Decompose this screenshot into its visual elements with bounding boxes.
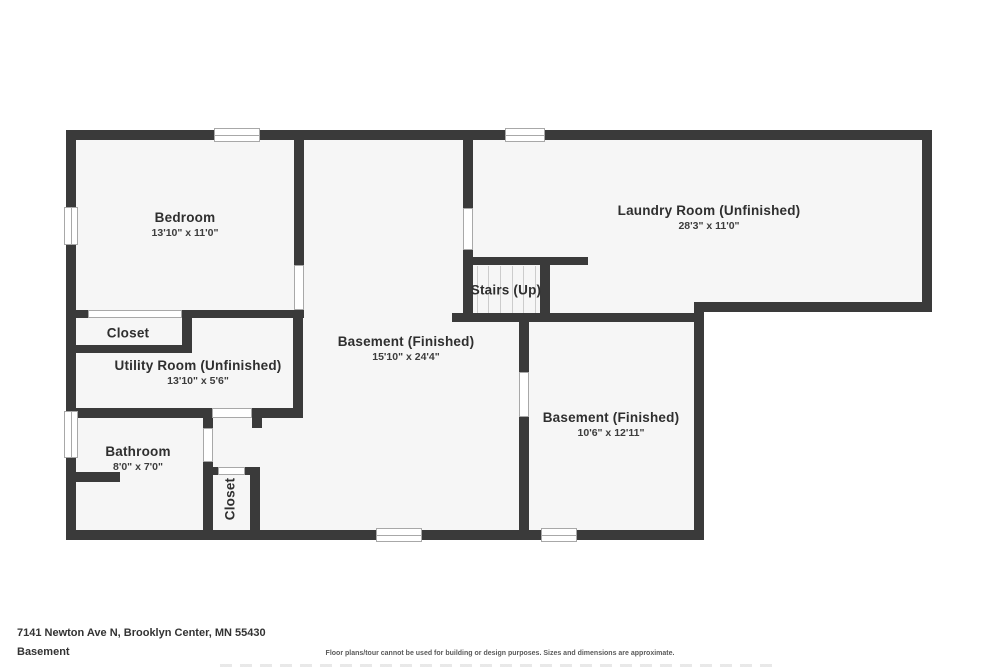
room-dimensions: 10'6" x 12'11" — [543, 427, 680, 440]
floor-plan: Bedroom13'10" x 11'0"ClosetUtility Room … — [0, 0, 1000, 667]
wall-exterior-right-lower — [694, 302, 704, 540]
wall-bedroom-bottom-main — [182, 310, 304, 318]
room-label-bedroom: Bedroom13'10" x 11'0" — [152, 210, 219, 240]
window-glass-line — [506, 135, 544, 136]
room-dimensions: 13'10" x 5'6" — [115, 375, 282, 388]
window-glass-line — [71, 208, 72, 244]
room-label-basement-center: Basement (Finished)15'10" x 24'4" — [338, 334, 475, 364]
room-name: Stairs (Up) — [471, 283, 541, 300]
wall-bathroom-right-stub — [203, 418, 213, 428]
property-address: 7141 Newton Ave N, Brooklyn Center, MN 5… — [17, 627, 266, 639]
wall-closet-lower-right — [250, 467, 260, 540]
disclaimer-text: Floor plans/tour cannot be used for buil… — [326, 650, 675, 657]
room-dimensions: 8'0" x 7'0" — [105, 461, 170, 474]
floor-level-label: Basement — [17, 646, 70, 658]
wall-utility-bottom-right — [252, 408, 303, 418]
window-top-center — [505, 128, 545, 142]
bathroom-door — [203, 428, 213, 462]
basement-right-door — [519, 372, 529, 417]
room-label-bathroom: Bathroom8'0" x 7'0" — [105, 444, 170, 474]
wall-closet-upper-bottom — [66, 345, 192, 353]
window-glass-line — [377, 535, 421, 536]
room-name: Basement (Finished) — [338, 334, 475, 351]
wall-utility-corner-stub — [252, 418, 262, 428]
wall-laundry-bottom — [694, 302, 932, 312]
wall-bedroom-bottom-stub — [66, 310, 88, 318]
window-bottom-center — [376, 528, 422, 542]
wall-exterior-top — [66, 130, 932, 140]
window-bottom-right — [541, 528, 577, 542]
room-name: Utility Room (Unfinished) — [115, 358, 282, 375]
wall-bedroom-right — [294, 140, 304, 265]
wall-basement-right-left-low — [519, 417, 529, 540]
room-label-utility-room: Utility Room (Unfinished)13'10" x 5'6" — [115, 358, 282, 388]
room-name: Closet — [223, 478, 240, 520]
room-name: Basement (Finished) — [543, 410, 680, 427]
room-name: Laundry Room (Unfinished) — [618, 203, 801, 220]
room-name: Bathroom — [105, 444, 170, 461]
wall-exterior-right-upper — [922, 130, 932, 312]
wall-stairs-right — [540, 265, 550, 318]
wall-basement-right-top — [452, 313, 704, 322]
floorplan-page: Bedroom13'10" x 11'0"ClosetUtility Room … — [0, 0, 1000, 667]
room-label-laundry-room: Laundry Room (Unfinished)28'3" x 11'0" — [618, 203, 801, 233]
closet-lower-door — [218, 467, 245, 475]
room-dimensions: 28'3" x 11'0" — [618, 220, 801, 233]
room-label-basement-right: Basement (Finished)10'6" x 12'11" — [543, 410, 680, 440]
laundry-door — [463, 208, 473, 250]
wall-stairs-top — [463, 257, 588, 265]
wall-closet-lower-top-left — [208, 467, 218, 475]
window-top-left — [214, 128, 260, 142]
wall-utility-bottom-left — [66, 408, 212, 418]
wall-utility-right — [293, 318, 303, 418]
window-left-bathroom — [64, 411, 78, 458]
window-glass-line — [215, 135, 259, 136]
room-dimensions: 15'10" x 24'4" — [338, 351, 475, 364]
utility-door — [212, 408, 252, 418]
window-left-bedroom — [64, 207, 78, 245]
room-name: Bedroom — [152, 210, 219, 227]
room-label-closet-lower: Closet — [223, 478, 240, 520]
room-dimensions: 13'10" x 11'0" — [152, 227, 219, 240]
room-label-closet-upper: Closet — [107, 326, 149, 343]
wall-laundry-left-upper — [463, 140, 473, 208]
room-name: Closet — [107, 326, 149, 343]
room-label-stairs: Stairs (Up) — [471, 283, 541, 300]
window-glass-line — [71, 412, 72, 457]
bedroom-door — [294, 265, 304, 310]
window-glass-line — [542, 535, 576, 536]
closet-upper-front — [88, 310, 182, 318]
wall-basement-right-left-up — [519, 313, 529, 372]
